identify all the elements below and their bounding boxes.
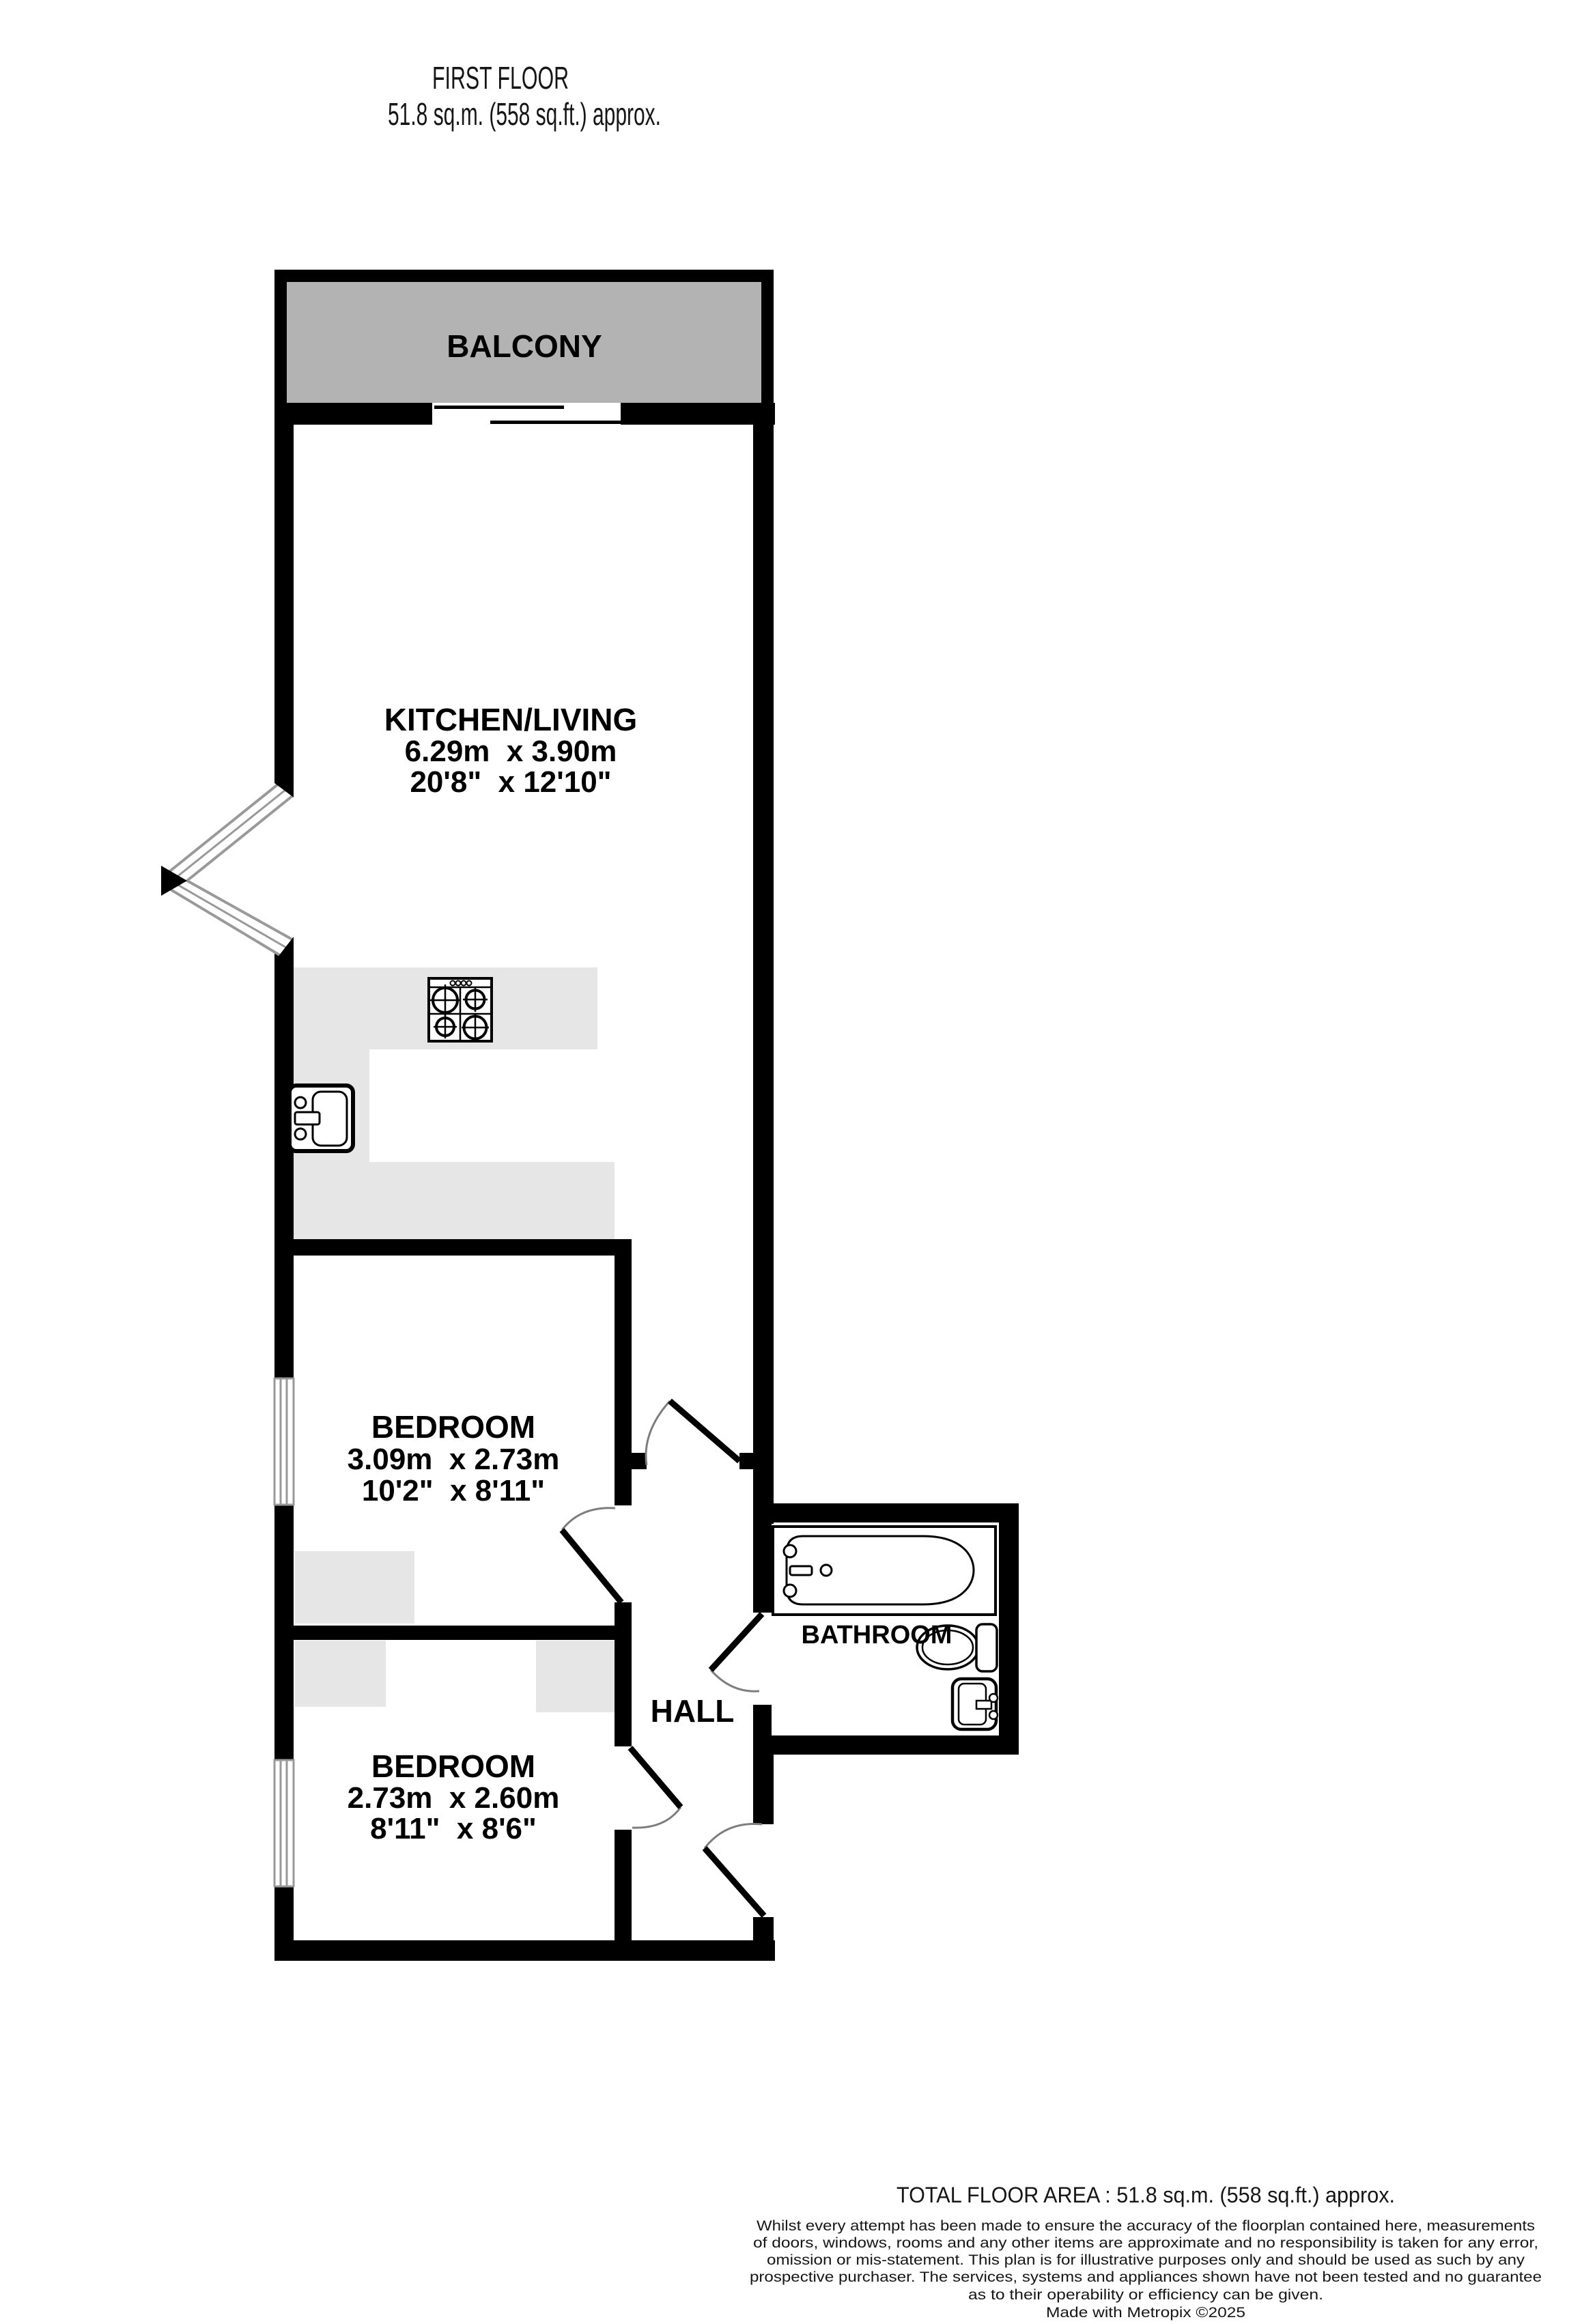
- plan-footer: TOTAL FLOOR AREA : 51.8 sq.m. (558 sq.ft…: [750, 2183, 1542, 2321]
- disclaimer-line: of doors, windows, rooms and any other i…: [753, 2235, 1538, 2251]
- kitchen-living-room: KITCHEN/LIVING 6.29m x 3.90m 20'8" x 12'…: [384, 702, 638, 799]
- bedroom-2: BEDROOM 2.73m x 2.60m 8'11" x 8'6": [348, 1748, 560, 1845]
- bedroom1-dims-metric: 3.09m x 2.73m: [348, 1443, 560, 1476]
- kitchen-sink-icon: [290, 1086, 353, 1151]
- hall: HALL: [651, 1693, 735, 1729]
- hall-label: HALL: [651, 1693, 735, 1729]
- bedroom2-label: BEDROOM: [371, 1748, 535, 1784]
- disclaimer-line: omission or mis-statement. This plan is …: [767, 2252, 1525, 2268]
- bedroom2-dims-imperial: 8'11" x 8'6": [370, 1812, 537, 1845]
- bay-window-icon: [161, 763, 294, 976]
- door-kitchen-to-hall: [646, 1401, 739, 1465]
- bedroom1-label: BEDROOM: [371, 1409, 535, 1445]
- floorplan-page: FIRST FLOOR 51.8 sq.m. (558 sq.ft.) appr…: [0, 0, 1595, 2324]
- kitchen-living-dims-imperial: 20'8" x 12'10": [410, 765, 611, 799]
- bathroom: BATHROOM: [802, 1621, 952, 1649]
- metropix-credit: Made with Metropix ©2025: [1046, 2305, 1245, 2321]
- plan-title: FIRST FLOOR 51.8 sq.m. (558 sq.ft.) appr…: [388, 60, 661, 132]
- kitchen-living-dims-metric: 6.29m x 3.90m: [405, 735, 617, 768]
- bedroom2-dims-metric: 2.73m x 2.60m: [348, 1781, 560, 1815]
- floor-title: FIRST FLOOR: [432, 60, 569, 96]
- disclaimer-line: Whilst every attempt has been made to en…: [757, 2218, 1535, 2234]
- balcony-label: BALCONY: [447, 328, 602, 364]
- floor-area-subtitle: 51.8 sq.m. (558 sq.ft.) approx.: [388, 96, 661, 132]
- wash-basin-icon: [952, 1679, 998, 1729]
- bedroom2-wardrobe-left: [295, 1641, 386, 1707]
- total-floor-area: TOTAL FLOOR AREA : 51.8 sq.m. (558 sq.ft…: [897, 2183, 1395, 2207]
- door-bathroom: [711, 1614, 762, 1691]
- door-bedroom-2: [630, 1748, 681, 1828]
- door-entry: [705, 1824, 764, 1916]
- disclaimer-line: as to their operability or efficiency ca…: [968, 2287, 1323, 2303]
- sliding-door: [434, 406, 621, 424]
- bedroom-1: BEDROOM 3.09m x 2.73m 10'2" x 8'11": [348, 1409, 560, 1507]
- bathtub-icon: [773, 1527, 996, 1615]
- bedroom2-window-icon: [274, 1760, 294, 1886]
- kitchen-living-label: KITCHEN/LIVING: [384, 702, 638, 737]
- bedroom1-dims-imperial: 10'2" x 8'11": [362, 1474, 545, 1507]
- disclaimer-line: prospective purchaser. The services, sys…: [750, 2269, 1542, 2285]
- stove-icon: [429, 978, 492, 1041]
- bedroom1-wardrobe: [295, 1551, 414, 1624]
- bedroom2-wardrobe-right: [536, 1641, 615, 1712]
- bedroom1-window-icon: [274, 1378, 294, 1505]
- floorplan: FIRST FLOOR 51.8 sq.m. (558 sq.ft.) appr…: [0, 0, 1595, 2324]
- bathroom-label: BATHROOM: [802, 1621, 952, 1649]
- door-bedroom-1: [562, 1508, 621, 1602]
